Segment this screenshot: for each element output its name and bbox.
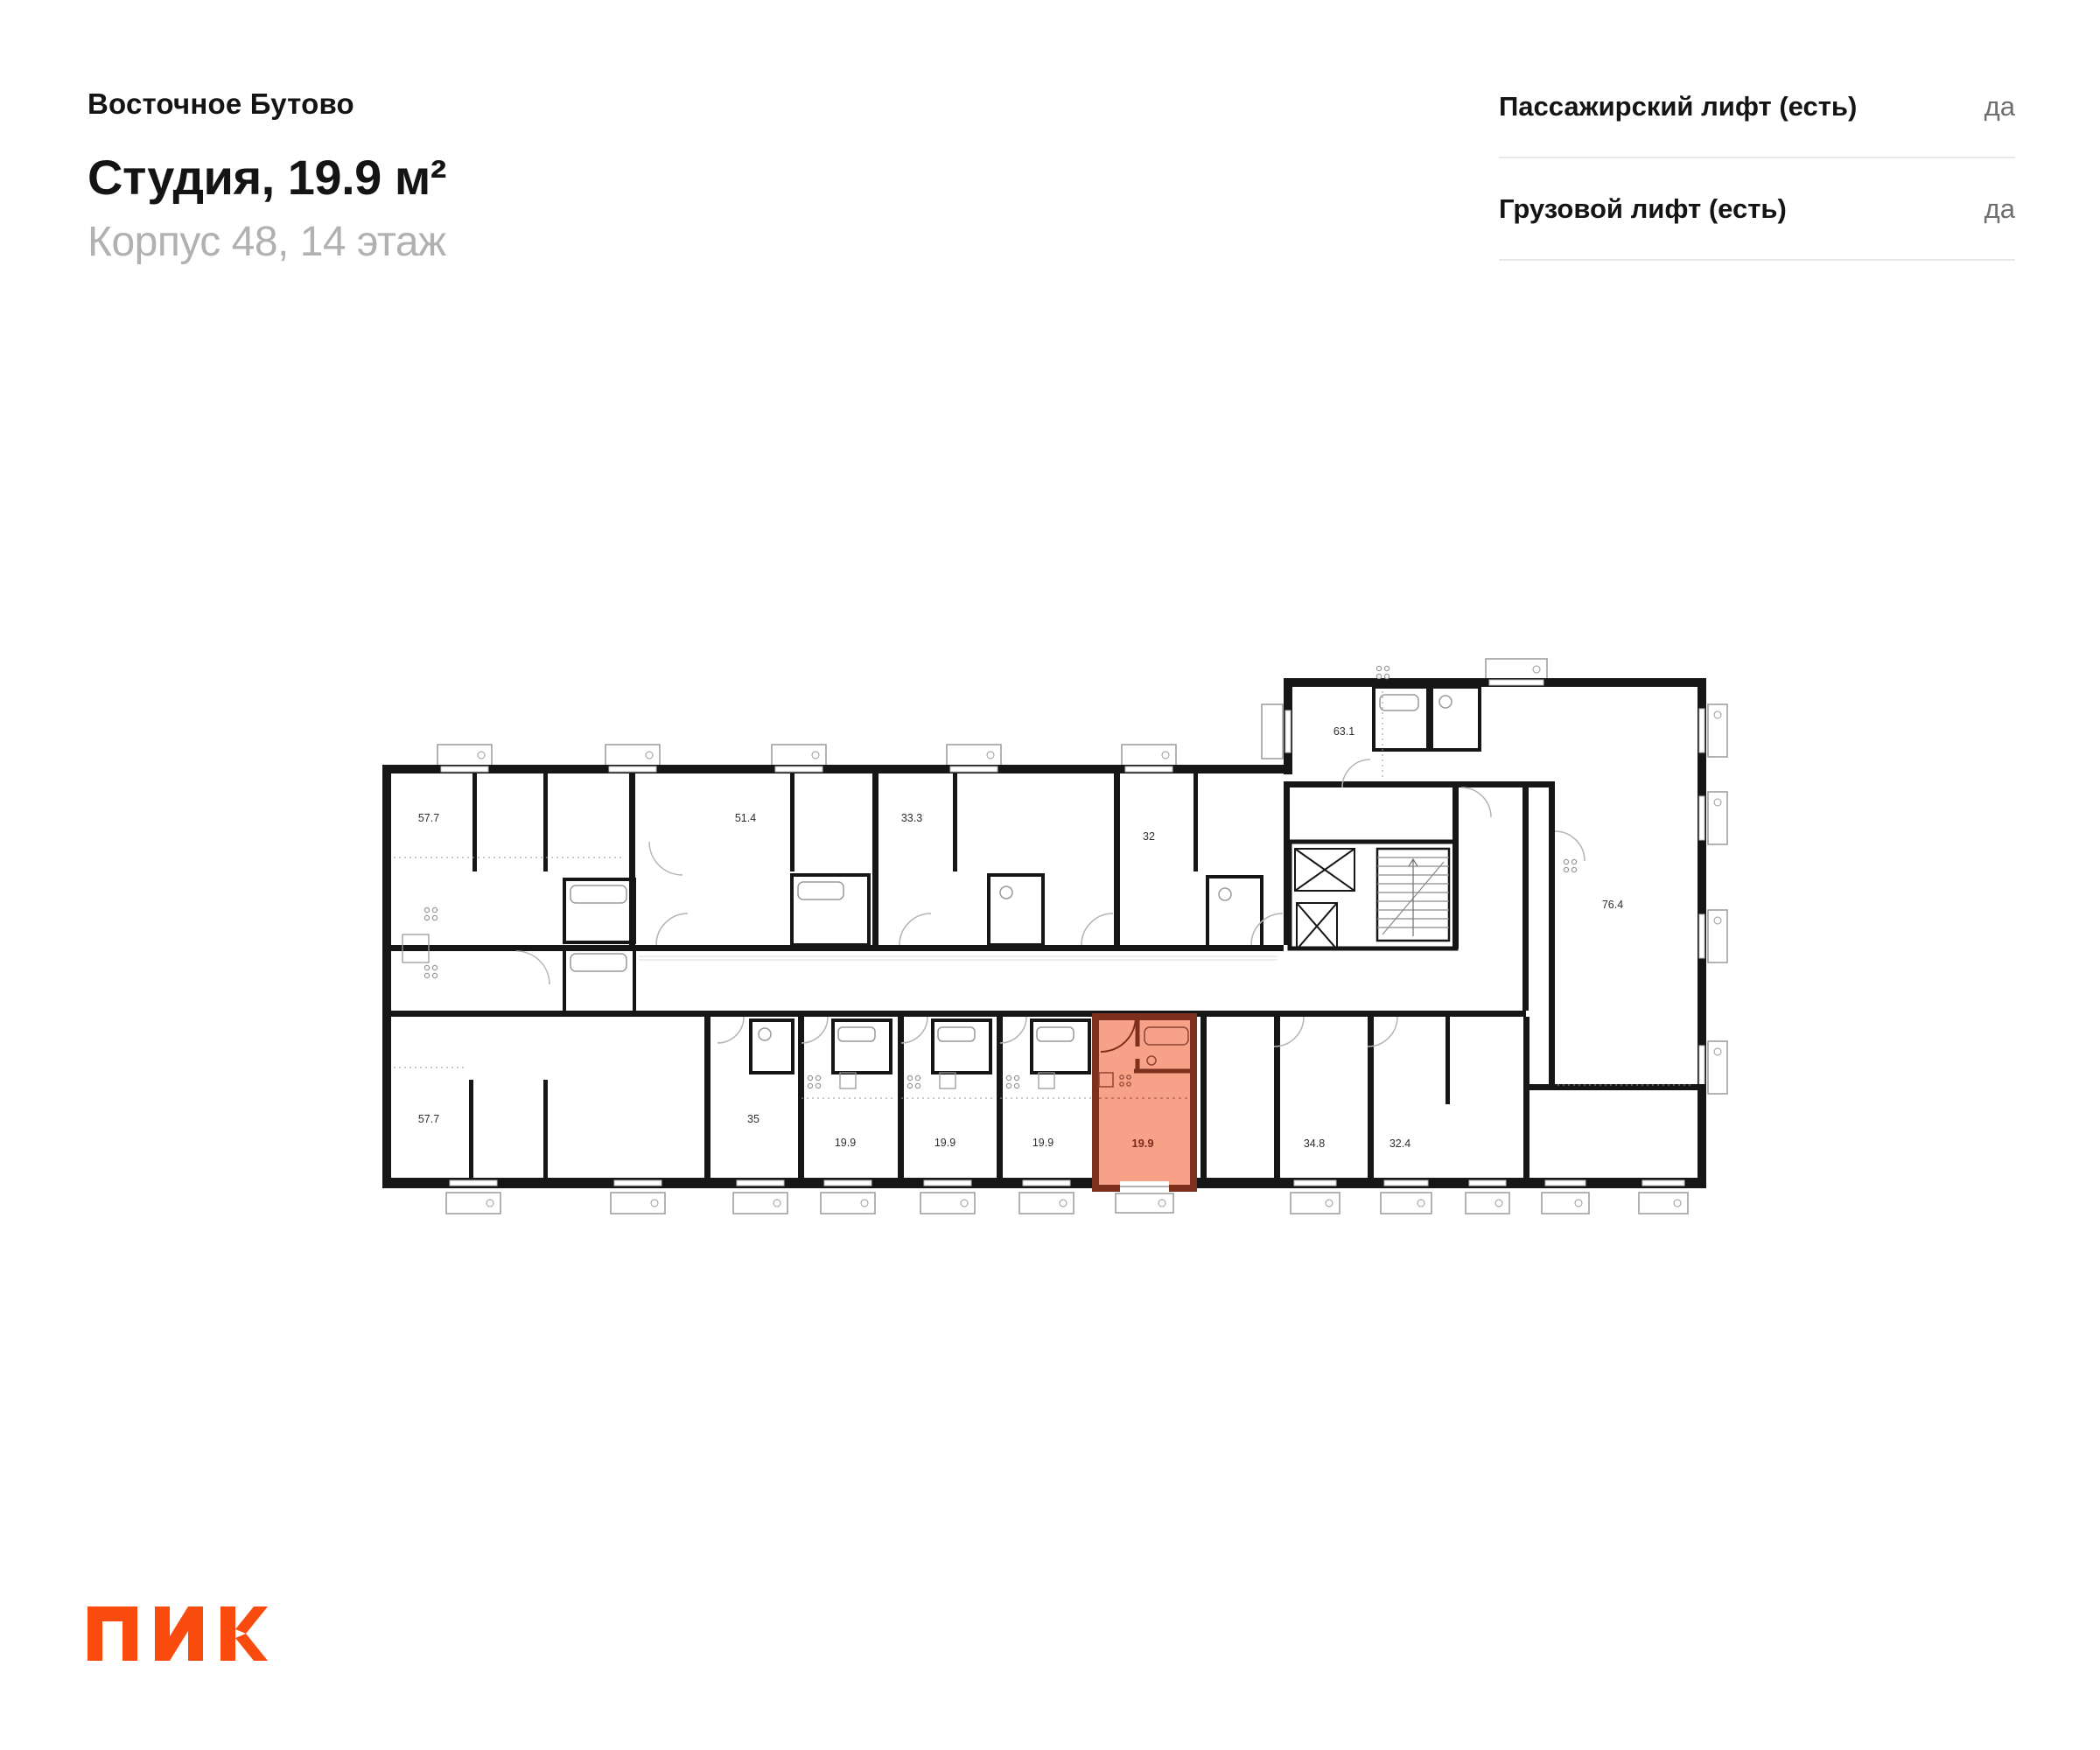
- corridor-floor-lines: [639, 956, 1277, 960]
- passenger-lift-row: Пассажирский лифт (есть) да: [1499, 56, 2015, 158]
- passenger-lift-label: Пассажирский лифт (есть): [1499, 91, 1857, 122]
- right-wing-walls: [1284, 781, 1706, 1090]
- floor-plan: 57.7 51.4 33.3 32 63.1 76.4 57.7 35 19.9…: [376, 656, 1728, 1260]
- room-label: 57.7: [418, 812, 439, 824]
- door-arcs: [516, 759, 1585, 1046]
- room-label: 57.7: [418, 1113, 439, 1125]
- pik-logo[interactable]: [87, 1606, 268, 1665]
- building-floor-subtitle: Корпус 48, 14 этаж: [87, 218, 446, 266]
- room-label: 32: [1143, 830, 1155, 843]
- project-name: Восточное Бутово: [87, 87, 446, 121]
- room-label: 63.1: [1333, 725, 1354, 738]
- cargo-lift-value: да: [1984, 193, 2015, 225]
- room-label: 51.4: [735, 812, 756, 824]
- room-area-labels: 57.7 51.4 33.3 32 63.1 76.4 57.7 35 19.9…: [418, 725, 1623, 1150]
- cargo-lift-label: Грузовой лифт (есть): [1499, 193, 1787, 225]
- pik-logo-icon: [87, 1606, 268, 1661]
- page-title: Студия, 19.9 м²: [87, 149, 446, 206]
- room-label: 19.9: [934, 1137, 955, 1149]
- bathtub-icons: [570, 695, 1452, 1041]
- unit-divider-walls-top: [472, 773, 1198, 945]
- elevator-shaft-icon: [1295, 849, 1354, 949]
- stairs-icon: [1377, 849, 1449, 941]
- passenger-lift-value: да: [1984, 91, 2015, 122]
- highlighted-unit[interactable]: [1095, 1017, 1193, 1213]
- highlighted-room-label: 19.9: [1131, 1137, 1153, 1150]
- unit-divider-walls-bottom: [469, 1017, 1529, 1178]
- apartment-header: Восточное Бутово Студия, 19.9 м² Корпус …: [87, 87, 446, 266]
- highlighted-unit-outline[interactable]: [1095, 1017, 1193, 1188]
- room-label: 19.9: [1032, 1137, 1053, 1149]
- stair-elevator-core: [1290, 842, 1456, 949]
- room-label: 32.4: [1389, 1137, 1410, 1150]
- room-label: 33.3: [901, 812, 922, 824]
- lift-info-panel: Пассажирский лифт (есть) да Грузовой лиф…: [1499, 56, 2015, 261]
- cargo-lift-row: Грузовой лифт (есть) да: [1499, 158, 2015, 261]
- room-label: 76.4: [1602, 899, 1623, 911]
- room-label: 19.9: [835, 1137, 856, 1149]
- room-label: 35: [747, 1113, 759, 1125]
- room-label: 34.8: [1304, 1137, 1325, 1150]
- corridor-walls: [386, 945, 1526, 1017]
